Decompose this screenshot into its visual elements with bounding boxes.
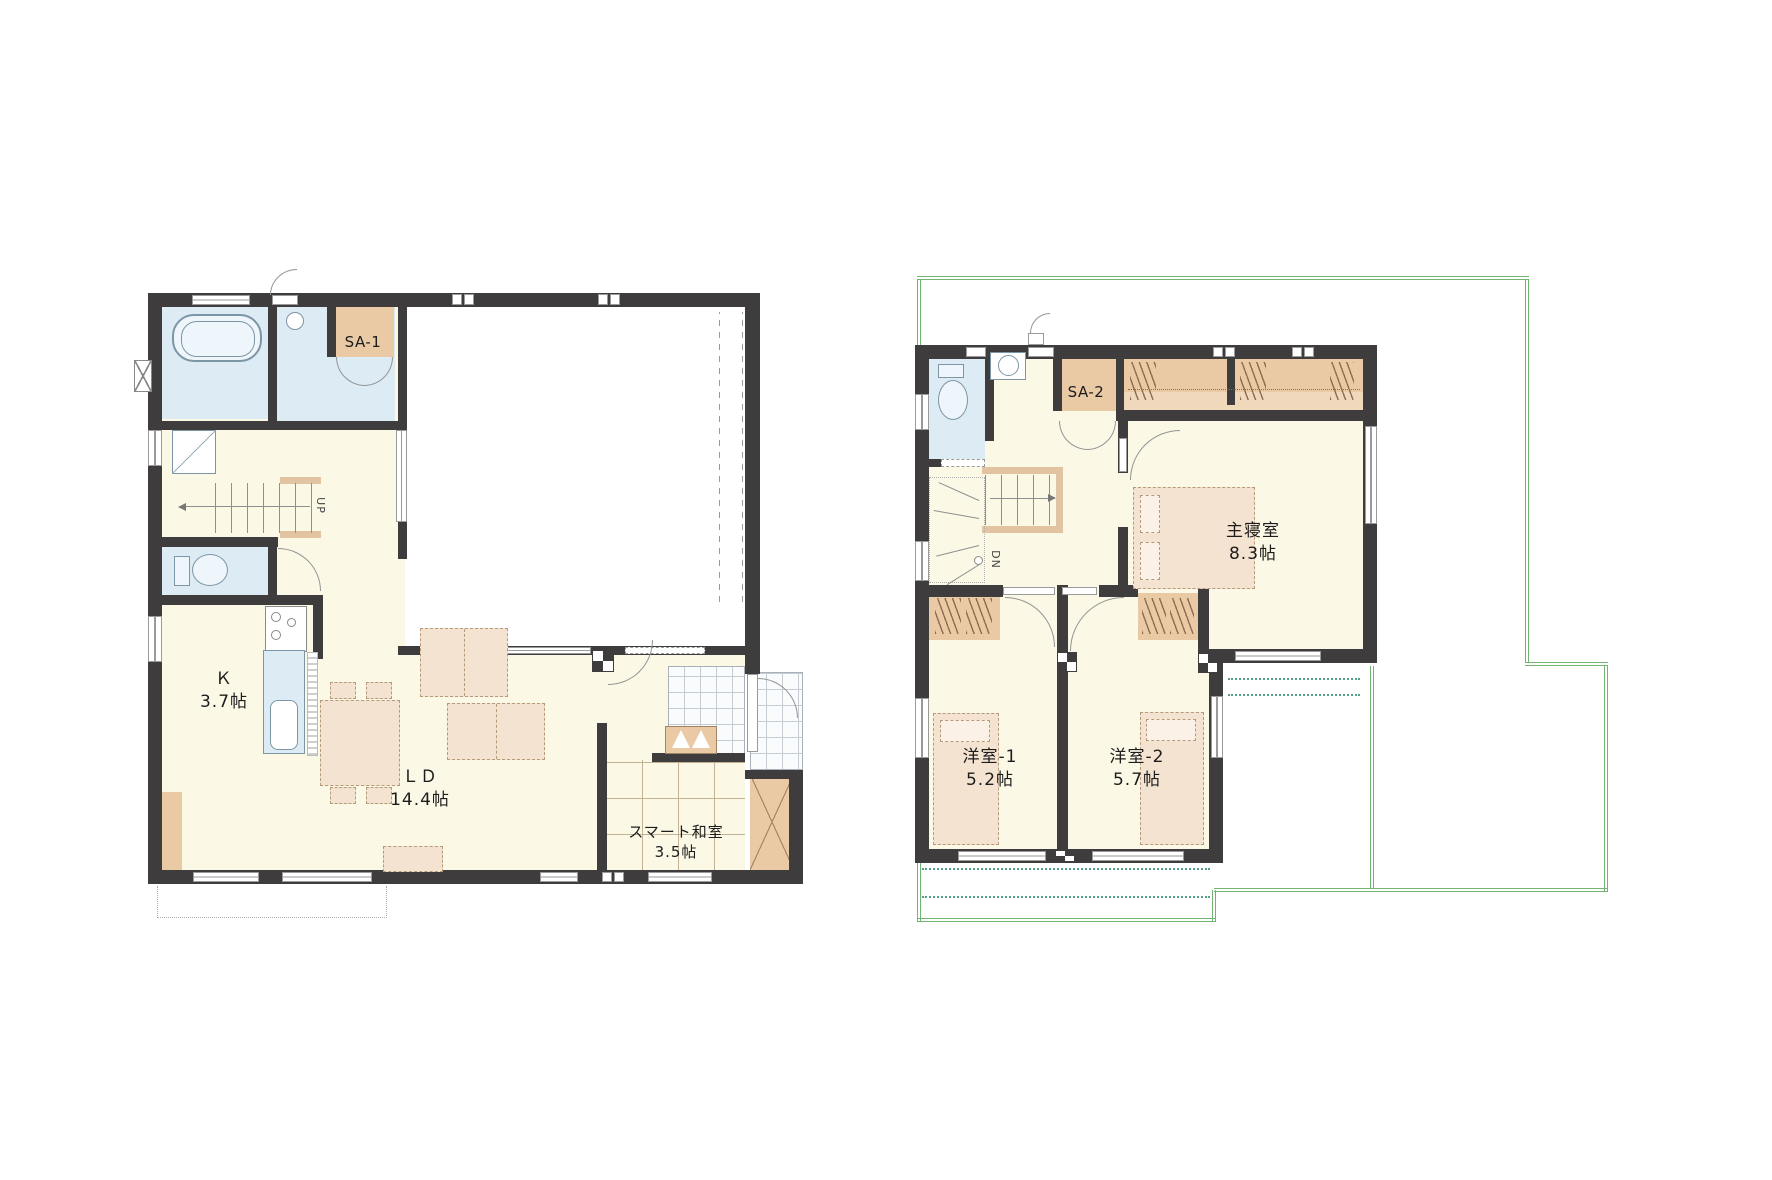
wall-entrance-stub bbox=[745, 640, 760, 674]
washroom-backdoor bbox=[272, 295, 298, 305]
west2-south-window bbox=[1092, 851, 1184, 861]
small-window bbox=[1225, 347, 1235, 357]
bath-window bbox=[192, 295, 250, 305]
west2-doorway bbox=[1062, 587, 1097, 595]
pillar-mark-icon bbox=[1198, 653, 1218, 673]
room-label-washitsu: スマート和室 3.5帖 bbox=[606, 822, 746, 863]
pillar-mark-icon bbox=[1055, 850, 1075, 862]
west1-size: 5.2帖 bbox=[920, 769, 1060, 792]
ld-south-window bbox=[193, 872, 259, 882]
small-window bbox=[464, 294, 474, 305]
stairs-1f-steps bbox=[215, 483, 318, 533]
small-window bbox=[1304, 347, 1314, 357]
wall-toilet1f-north bbox=[148, 537, 278, 547]
balcony-outline-step bbox=[1212, 890, 1216, 922]
room-label-kitchen: Ｋ 3.7帖 bbox=[164, 668, 284, 714]
stairs-2f-pole-icon bbox=[974, 556, 983, 565]
wall-wic-south bbox=[1123, 410, 1363, 421]
stairs-2f-steps bbox=[985, 475, 1057, 525]
west1-south-window bbox=[958, 851, 1046, 861]
small-window bbox=[1213, 347, 1223, 357]
washitsu-size: 3.5帖 bbox=[606, 842, 746, 862]
sofa-cushion-line bbox=[496, 704, 497, 759]
garage-inner-window bbox=[396, 430, 407, 522]
dining-chair bbox=[330, 682, 356, 699]
balcony-outline-bottom bbox=[917, 918, 1216, 922]
hanger-pipe-icon bbox=[935, 598, 961, 634]
floorplan-canvas: UP SA-1 Ｋ 3.7 bbox=[0, 0, 1772, 1180]
room-label-west2: 洋室-2 5.7帖 bbox=[1067, 746, 1207, 792]
washbasin-1f-icon bbox=[286, 312, 304, 330]
stove-burner-icon bbox=[271, 612, 281, 622]
counter-hatch bbox=[307, 652, 318, 756]
wall-west2closet-master bbox=[1198, 585, 1209, 661]
hanger-pipe-icon bbox=[1142, 598, 1166, 634]
west2-size: 5.7帖 bbox=[1067, 769, 1207, 792]
hanger-pipe-icon bbox=[1240, 362, 1266, 400]
wall-toilet1f-east bbox=[268, 537, 277, 597]
roof-outline-left-upper bbox=[917, 280, 921, 346]
pillar-mark-icon bbox=[592, 650, 614, 672]
small-window bbox=[1292, 347, 1302, 357]
pillar-mark-icon bbox=[1057, 652, 1077, 672]
room-label-master: 主寝室 8.3帖 bbox=[1183, 520, 1323, 566]
shutter-line bbox=[742, 312, 743, 602]
small-window bbox=[602, 872, 612, 882]
wall-genkan-washitsu bbox=[652, 753, 745, 762]
bathtub-inner bbox=[181, 321, 255, 357]
stairs-2f-direction: DN bbox=[989, 550, 1002, 569]
sofa-cushion-line bbox=[464, 629, 465, 696]
north-door-swing-icon bbox=[1030, 313, 1050, 333]
west1-name: 洋室-1 bbox=[920, 746, 1060, 769]
toilet-1f-bowl bbox=[192, 554, 228, 586]
ld-size: 14.4帖 bbox=[350, 789, 490, 812]
wall-1f-southeast bbox=[789, 770, 803, 870]
ld-south-window bbox=[540, 872, 578, 882]
shoe-cabinet-mark-icon bbox=[692, 730, 710, 748]
room-label-ld: ＬＤ 14.4帖 bbox=[350, 766, 490, 812]
roof-eave-line bbox=[1228, 678, 1360, 680]
hanger-pipe-icon bbox=[966, 598, 992, 634]
pillow bbox=[1140, 542, 1160, 580]
toilet2f-top-window bbox=[966, 347, 986, 357]
balcony-eave-line bbox=[922, 868, 1210, 870]
wall-west1-west2 bbox=[1057, 585, 1068, 849]
garage-void-area bbox=[405, 307, 745, 646]
washitsu-name: スマート和室 bbox=[606, 822, 746, 842]
toilet2f-sliding-door bbox=[941, 459, 985, 467]
west2-east-window bbox=[1211, 696, 1223, 758]
laundry-window bbox=[148, 430, 162, 466]
hall-top-window bbox=[1028, 347, 1054, 357]
vent-box-icon bbox=[134, 360, 152, 392]
stairs-1f-arrow-head bbox=[178, 503, 186, 511]
master-size: 8.3帖 bbox=[1183, 543, 1323, 566]
ld-north-window bbox=[505, 647, 591, 654]
balcony-outline-left bbox=[917, 863, 921, 922]
hanger-pipe-icon bbox=[1130, 362, 1156, 400]
toilet-1f-tank bbox=[174, 556, 190, 586]
roof-outline-inner bbox=[1370, 666, 1374, 888]
stove-burner-icon bbox=[287, 618, 296, 627]
pillow bbox=[1140, 495, 1160, 533]
washing-machine-mark bbox=[172, 430, 216, 474]
wall-kitchen-stub bbox=[313, 595, 323, 659]
small-window bbox=[610, 294, 620, 305]
room-label-sa1: SA-1 bbox=[327, 333, 399, 351]
stairs-west-window bbox=[915, 541, 929, 581]
ld-south-window bbox=[282, 872, 372, 882]
north-door bbox=[1028, 333, 1044, 345]
stairs-2f-winder-outline bbox=[929, 477, 985, 583]
entrance-door bbox=[747, 674, 758, 752]
ld-name: ＬＤ bbox=[350, 766, 490, 789]
wall-toilet2f-stub bbox=[929, 459, 941, 467]
pantry-storage bbox=[162, 792, 182, 870]
kitchen-window bbox=[148, 616, 162, 662]
pillow bbox=[940, 720, 990, 742]
roof-outline-jog bbox=[1525, 662, 1608, 666]
shutter-line bbox=[719, 312, 720, 602]
wall-bath-washroom bbox=[268, 307, 277, 421]
room-label-west1: 洋室-1 5.2帖 bbox=[920, 746, 1060, 792]
master-south-window bbox=[1235, 651, 1321, 661]
terrace-outline bbox=[157, 886, 387, 918]
master-east-window bbox=[1365, 426, 1377, 524]
lower-roof-area bbox=[1223, 663, 1363, 849]
master-sliding-door bbox=[1119, 438, 1127, 472]
wall-toilet1f-south bbox=[148, 595, 323, 605]
tv-board bbox=[383, 846, 443, 872]
wall-garage-east bbox=[745, 293, 760, 648]
balcony-eave-line bbox=[922, 896, 1210, 898]
small-window bbox=[598, 294, 608, 305]
toilet2f-west-window bbox=[915, 394, 929, 430]
washitsu-closet bbox=[750, 774, 794, 870]
west2-name: 洋室-2 bbox=[1067, 746, 1207, 769]
stairs-1f-direction: UP bbox=[314, 497, 327, 514]
hanger-pipe-icon bbox=[1170, 598, 1194, 634]
shoe-cabinet-mark-icon bbox=[672, 730, 690, 748]
backdoor-swing-icon bbox=[270, 269, 297, 295]
roof-outline-right-upper bbox=[1525, 280, 1529, 662]
roof-outline-right-lower bbox=[1604, 666, 1608, 892]
hanger-pipe-icon bbox=[1330, 362, 1354, 400]
pillow bbox=[1146, 719, 1196, 741]
master-name: 主寝室 bbox=[1183, 520, 1323, 543]
room-label-sa2: SA-2 bbox=[1050, 383, 1122, 401]
wall-washroom-south bbox=[148, 421, 398, 430]
wic-shelf-line bbox=[1128, 389, 1360, 390]
kitchen-size: 3.7帖 bbox=[164, 691, 284, 714]
stairs-2f-arrow-head bbox=[1048, 494, 1056, 502]
toilet-2f-tank bbox=[938, 364, 964, 378]
roof-outline-top bbox=[917, 276, 1529, 280]
toilet-2f-bowl bbox=[938, 380, 968, 420]
roof-outline-bottom-right bbox=[1214, 888, 1608, 892]
kitchen-name: Ｋ bbox=[164, 668, 284, 691]
small-window bbox=[452, 294, 462, 305]
stairs-2f-arrow-line bbox=[990, 498, 1050, 499]
dining-chair bbox=[366, 682, 392, 699]
washitsu-south-window bbox=[648, 872, 712, 882]
west1-doorway bbox=[1003, 587, 1055, 595]
stove-burner-icon bbox=[271, 630, 281, 640]
roof-eave-line bbox=[1228, 694, 1360, 696]
washbasin-2f-bowl-icon bbox=[998, 355, 1019, 376]
wall-wic-partition bbox=[1227, 359, 1235, 405]
wall-hall-west1 bbox=[915, 585, 1003, 597]
small-window bbox=[614, 872, 624, 882]
stairs-1f-arrow-line bbox=[185, 506, 310, 507]
